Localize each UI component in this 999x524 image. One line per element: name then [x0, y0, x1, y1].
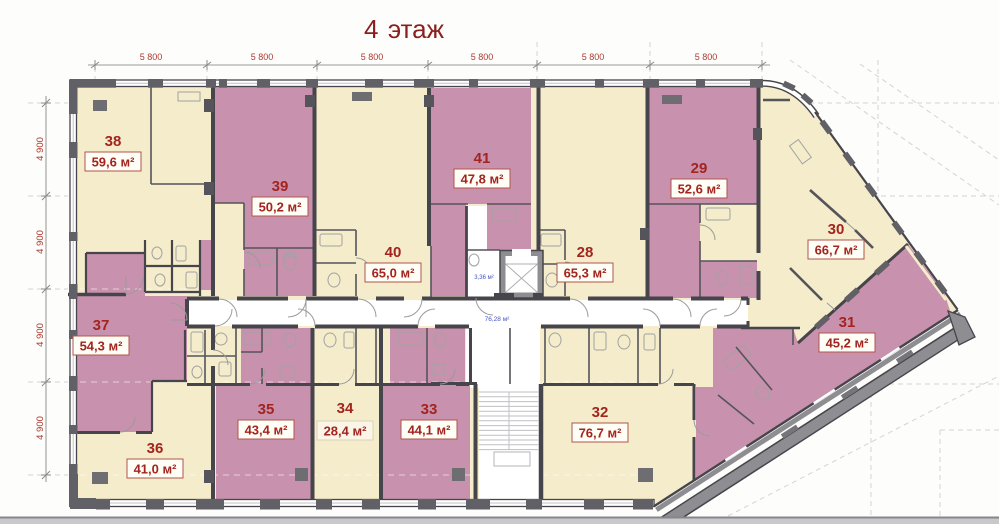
svg-text:65,0 м²: 65,0 м² — [372, 266, 416, 281]
svg-text:41,0 м²: 41,0 м² — [134, 462, 178, 477]
svg-text:32: 32 — [592, 404, 609, 421]
svg-text:5 800: 5 800 — [695, 52, 718, 62]
svg-text:30: 30 — [828, 221, 845, 238]
svg-text:5 800: 5 800 — [251, 52, 274, 62]
svg-text:5 800: 5 800 — [361, 52, 384, 62]
svg-text:5 800: 5 800 — [471, 52, 494, 62]
svg-text:43,4 м²: 43,4 м² — [245, 423, 289, 438]
svg-text:28,4 м²: 28,4 м² — [324, 424, 368, 439]
svg-text:28: 28 — [577, 244, 594, 261]
svg-text:44,1 м²: 44,1 м² — [408, 423, 452, 438]
svg-text:40: 40 — [385, 244, 402, 261]
svg-text:33: 33 — [421, 401, 438, 418]
svg-text:38: 38 — [105, 133, 122, 150]
svg-text:39: 39 — [272, 178, 289, 195]
svg-text:4 900: 4 900 — [35, 416, 46, 440]
svg-text:54,3 м²: 54,3 м² — [80, 339, 124, 354]
svg-text:65,3 м²: 65,3 м² — [564, 266, 608, 281]
svg-text:47,8 м²: 47,8 м² — [461, 172, 505, 187]
svg-text:4 900: 4 900 — [35, 323, 46, 347]
svg-text:4 900: 4 900 — [35, 230, 46, 254]
svg-text:76,7 м²: 76,7 м² — [579, 426, 623, 441]
svg-text:76,28 м²: 76,28 м² — [485, 316, 511, 323]
svg-text:4 900: 4 900 — [35, 137, 46, 161]
svg-text:59,6 м²: 59,6 м² — [92, 155, 136, 170]
svg-text:31: 31 — [839, 314, 856, 331]
svg-text:5 800: 5 800 — [140, 52, 163, 62]
svg-text:29: 29 — [691, 160, 708, 177]
svg-text:35: 35 — [258, 401, 275, 418]
svg-text:4 этаж: 4 этаж — [364, 14, 445, 44]
svg-text:5 800: 5 800 — [582, 52, 605, 62]
svg-text:66,7 м²: 66,7 м² — [815, 243, 859, 258]
svg-text:45,2 м²: 45,2 м² — [826, 336, 870, 351]
svg-text:52,6 м²: 52,6 м² — [678, 182, 722, 197]
svg-text:50,2 м²: 50,2 м² — [259, 200, 303, 215]
svg-text:41: 41 — [474, 150, 491, 167]
svg-text:37: 37 — [93, 317, 110, 334]
svg-text:3,36 м²: 3,36 м² — [474, 275, 493, 281]
svg-text:34: 34 — [337, 400, 354, 417]
svg-text:36: 36 — [147, 440, 164, 457]
